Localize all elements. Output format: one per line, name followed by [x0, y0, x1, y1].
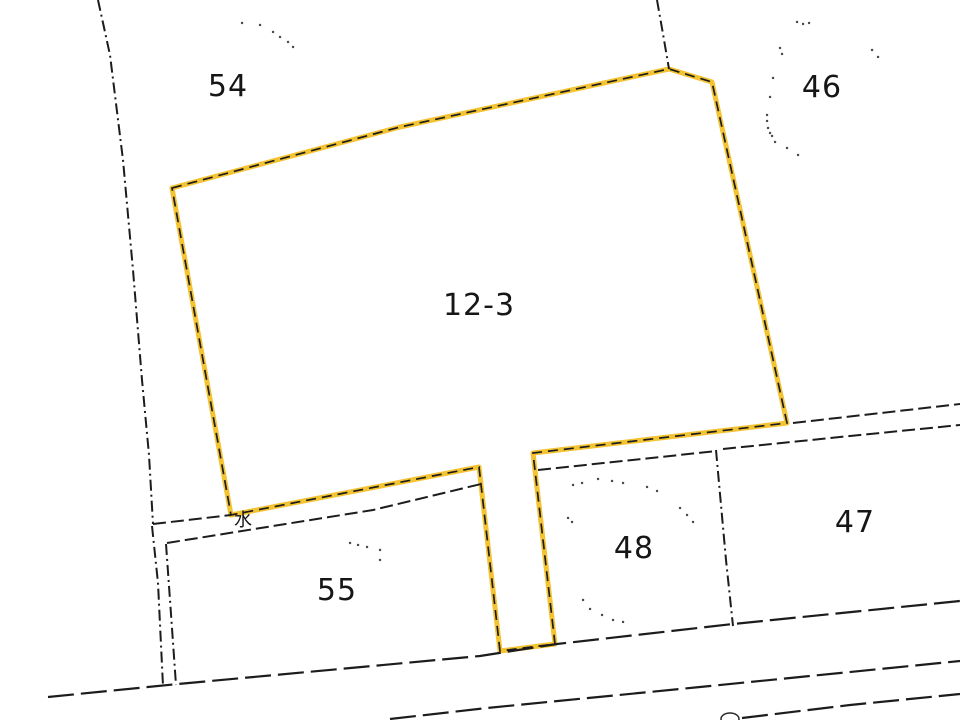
lane-upper-edge-west — [153, 515, 231, 524]
parcel-label-47: 47 — [835, 508, 875, 538]
road-lower-edge — [390, 661, 960, 719]
parcel-label-48: 48 — [614, 534, 654, 564]
dotted-arc-parcel-54 — [242, 23, 293, 47]
map-linework — [0, 0, 960, 720]
parcel-48-top-edge — [538, 451, 717, 470]
dotted-arc-parcel-55 — [350, 543, 380, 560]
highlighted-parcel-outline — [172, 69, 787, 651]
boundary-48-47 — [716, 450, 733, 626]
parcel-55-top-edge — [167, 484, 481, 543]
parcel-label-46: 46 — [802, 73, 842, 103]
parcel-label-54: 54 — [208, 72, 248, 102]
ditch-line-left — [152, 526, 163, 686]
parcel-label-55: 55 — [317, 576, 357, 606]
cadastral-map: 54 46 12-3 47 48 55 水 — [0, 0, 960, 720]
west-boundary-line — [98, 0, 153, 524]
lane-upper-edge-east — [793, 404, 960, 423]
water-marker-label: 水 — [234, 512, 252, 530]
road-second-lower-edge — [742, 694, 960, 718]
parcel-label-12-3: 12-3 — [443, 291, 515, 321]
boundary-54-46 — [657, 0, 669, 69]
parcel-12-3-boundary-line — [172, 69, 787, 651]
ditch-line-right — [166, 544, 176, 685]
manhole-icon — [721, 713, 739, 720]
